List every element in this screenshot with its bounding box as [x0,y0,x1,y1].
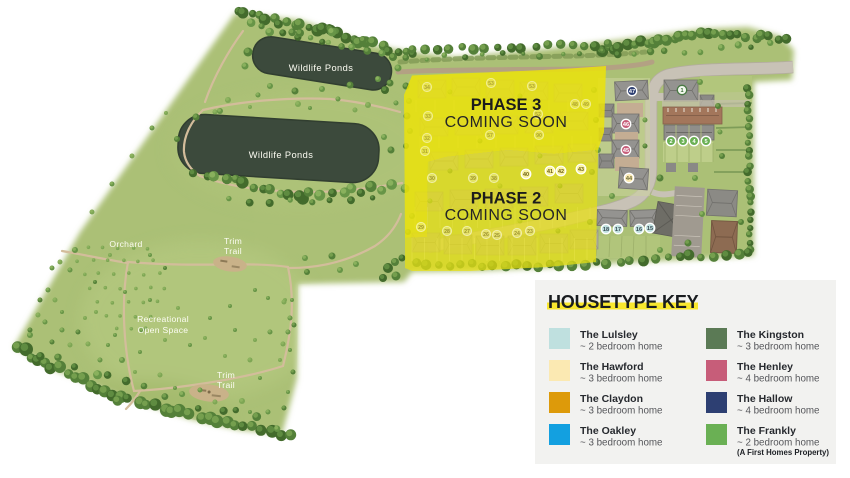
svg-text:41: 41 [547,169,553,175]
svg-text:Trim: Trim [217,370,235,380]
svg-text:26: 26 [483,232,489,238]
svg-text:Wildlife Ponds: Wildlife Ponds [249,150,314,160]
svg-text:1: 1 [680,88,683,94]
svg-text:The Claydon: The Claydon [580,393,643,405]
svg-text:~ 4 bedroom home: ~ 4 bedroom home [737,406,820,417]
svg-text:Trail: Trail [217,380,235,390]
svg-text:~ 2 bedroom home: ~ 2 bedroom home [580,342,663,353]
svg-text:38: 38 [491,176,497,182]
svg-text:18: 18 [603,227,609,233]
svg-text:57: 57 [487,133,493,139]
svg-text:~ 4 bedroom home: ~ 4 bedroom home [737,374,820,385]
svg-text:90: 90 [536,133,542,139]
svg-text:Orchard: Orchard [109,239,142,249]
svg-text:25: 25 [494,233,500,239]
svg-text:47: 47 [629,89,635,95]
svg-text:~ 2 bedroom home: ~ 2 bedroom home [737,438,820,449]
svg-text:53: 53 [488,81,494,87]
svg-text:The Hallow: The Hallow [737,393,793,405]
svg-text:15: 15 [647,226,653,232]
svg-text:The Lulsley: The Lulsley [580,329,638,341]
svg-text:Wildlife Ponds: Wildlife Ponds [289,63,354,73]
svg-text:2: 2 [669,139,672,145]
svg-text:29: 29 [418,225,424,231]
svg-text:33: 33 [425,114,431,120]
svg-text:The Kingston: The Kingston [737,329,804,341]
svg-text:16: 16 [636,227,642,233]
svg-text:53: 53 [529,84,535,90]
svg-text:44: 44 [626,176,633,182]
svg-text:PHASE 2: PHASE 2 [471,190,542,208]
svg-text:5: 5 [704,139,707,145]
svg-text:~ 3 bedroom home: ~ 3 bedroom home [737,342,820,353]
svg-text:The Frankly: The Frankly [737,425,796,437]
svg-text:46: 46 [623,122,629,128]
svg-text:48: 48 [572,102,578,108]
svg-text:32: 32 [424,136,430,142]
svg-text:40: 40 [523,172,529,178]
svg-text:43: 43 [578,167,584,173]
svg-text:23: 23 [527,229,533,235]
svg-text:Recreational: Recreational [137,314,189,324]
svg-text:27: 27 [464,229,470,235]
svg-text:Open Space: Open Space [138,325,189,335]
svg-text:31: 31 [422,149,428,155]
svg-text:The Oakley: The Oakley [580,425,636,437]
svg-text:~ 3 bedroom home: ~ 3 bedroom home [580,374,663,385]
svg-text:49: 49 [583,102,589,108]
svg-text:The Henley: The Henley [737,361,793,373]
svg-text:~ 3 bedroom home: ~ 3 bedroom home [580,438,663,449]
svg-text:45: 45 [623,148,629,154]
svg-text:24: 24 [514,231,520,237]
svg-text:39: 39 [470,176,476,182]
svg-text:28: 28 [444,229,450,235]
svg-text:17: 17 [615,227,621,233]
svg-text:The Hawford: The Hawford [580,361,644,373]
svg-text:34: 34 [424,85,430,91]
svg-text:(A First Homes Property): (A First Homes Property) [737,448,829,457]
svg-text:PHASE 3: PHASE 3 [471,96,542,114]
svg-text:42: 42 [558,169,564,175]
svg-text:Trail: Trail [224,246,242,256]
svg-text:COMING SOON: COMING SOON [445,207,568,224]
svg-text:30: 30 [429,176,435,182]
svg-text:Trim: Trim [224,236,242,246]
svg-text:COMING SOON: COMING SOON [445,114,568,131]
svg-text:HOUSETYPE KEY: HOUSETYPE KEY [548,292,699,312]
svg-text:3: 3 [681,139,684,145]
svg-text:~ 3 bedroom home: ~ 3 bedroom home [580,406,663,417]
